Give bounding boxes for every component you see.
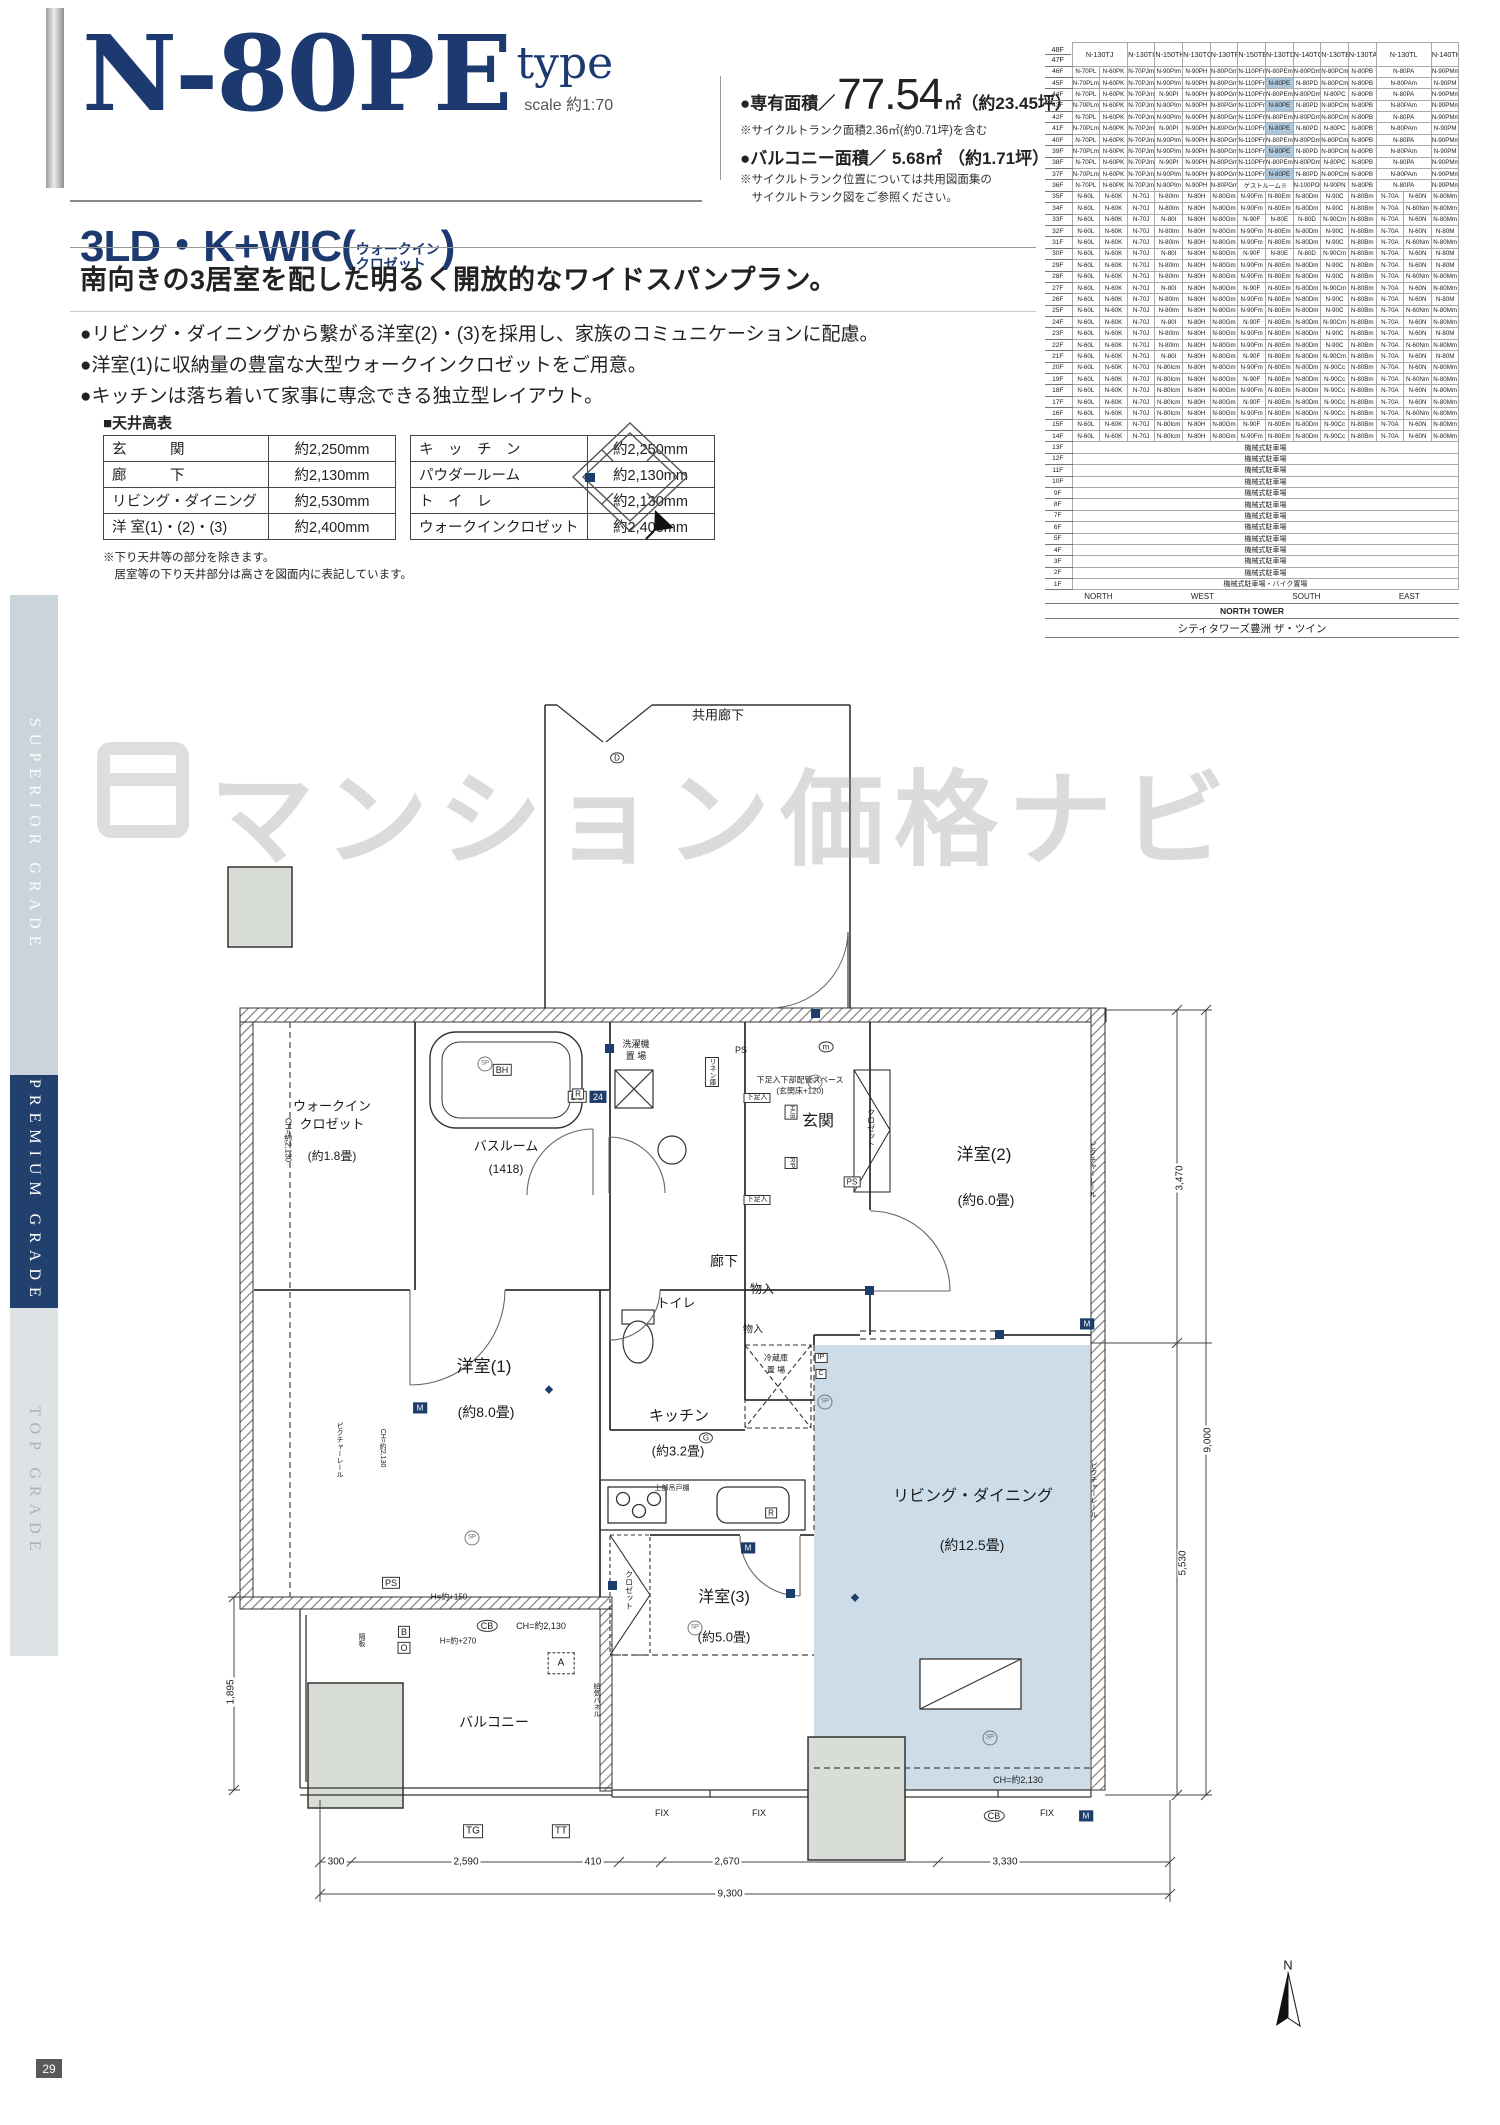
unit-cell: N-90C <box>1321 225 1349 236</box>
unit-cell: N-80Bm <box>1348 419 1376 430</box>
unit-cell: N-90Cm <box>1321 282 1349 293</box>
divider <box>70 311 1036 312</box>
unit-cell: N-90PI <box>1155 89 1183 100</box>
unit-cell: N-60N <box>1404 248 1432 259</box>
unit-cell: N-80PAm <box>1376 169 1431 180</box>
floor-label: 33F <box>1045 214 1072 225</box>
floor-label: 34F <box>1045 203 1072 214</box>
unit-cell: N-80Em <box>1265 271 1293 282</box>
unit-cell: N-70PL <box>1072 66 1100 77</box>
unit-cell: N-90PIm <box>1155 112 1183 123</box>
unit-cell: N-90Fm <box>1238 237 1266 248</box>
unit-cell: N-100POm <box>1293 180 1321 191</box>
unit-cell: N-90C <box>1321 271 1349 282</box>
parking-floor-cell: 機械式駐車場 <box>1072 544 1459 555</box>
unit-cell: N-80Em <box>1265 419 1293 430</box>
exclusive-area-value: 77.54 <box>837 70 942 120</box>
unit-cell: N-80D <box>1293 248 1321 259</box>
unit-cell: N-60L <box>1072 396 1100 407</box>
unit-cell: N-60L <box>1072 294 1100 305</box>
unit-cell: N-90PH <box>1183 100 1211 111</box>
unit-cell: N-70J <box>1127 260 1155 271</box>
unit-cell: N-90PI <box>1155 157 1183 168</box>
unit-cell: N-80Mm <box>1431 419 1459 430</box>
unit-type-header: N-130TB <box>1321 43 1349 67</box>
unit-cell: N-70PL <box>1072 89 1100 100</box>
unit-cell: N-80Em <box>1265 203 1293 214</box>
brochure-page: N-80PEtypescale 約1:70 3LD・K+WIC(ウォークインクロ… <box>0 0 1500 2125</box>
parking-floor-cell: 機械式駐車場 <box>1072 453 1459 464</box>
floor-label: 6F <box>1045 522 1072 533</box>
unit-cell: N-80Em <box>1265 237 1293 248</box>
unit-cell: N-80M <box>1431 260 1459 271</box>
unit-cell: N-80H <box>1183 203 1211 214</box>
unit-cell: N-110PFm <box>1238 66 1266 77</box>
unit-cell: N-80Gm <box>1210 225 1238 236</box>
floor-label: 16F <box>1045 408 1072 419</box>
unit-cell: N-80Gm <box>1210 351 1238 362</box>
unit-cell: N-80Gm <box>1210 260 1238 271</box>
unit-cell: N-70PJm <box>1127 169 1155 180</box>
floor-label: 8F <box>1045 499 1072 510</box>
unit-cell: N-80Im <box>1155 328 1183 339</box>
unit-cell: N-80Gm <box>1210 214 1238 225</box>
cycle-trunk-note3: サイクルトランク図をご参照ください。 <box>740 189 1040 205</box>
unit-cell: N-80PGm <box>1210 66 1238 77</box>
unit-cell: N-80Mm <box>1431 339 1459 350</box>
floor-label: 12F <box>1045 453 1072 464</box>
unit-cell: N-80Bm <box>1348 362 1376 373</box>
unit-cell: N-60N <box>1404 351 1432 362</box>
unit-cell: N-80Em <box>1265 328 1293 339</box>
unit-cell: N-60L <box>1072 419 1100 430</box>
unit-cell: N-80Dm <box>1293 374 1321 385</box>
unit-cell: N-90PM <box>1431 77 1459 88</box>
floor-label: 32F <box>1045 225 1072 236</box>
unit-cell: N-80PGm <box>1210 89 1238 100</box>
unit-cell: N-90C <box>1321 191 1349 202</box>
unit-cell: N-80Bm <box>1348 431 1376 442</box>
unit-cell: ゲストルーム※ <box>1238 180 1293 191</box>
unit-cell: N-80Bm <box>1348 203 1376 214</box>
unit-cell: N-80PB <box>1348 157 1376 168</box>
unit-cell: N-60PK <box>1100 89 1128 100</box>
unit-cell: N-80Mm <box>1431 385 1459 396</box>
unit-cell: N-90Cc <box>1321 362 1349 373</box>
unit-cell: N-90Cc <box>1321 385 1349 396</box>
unit-cell: N-80I <box>1155 317 1183 328</box>
unit-cell: N-60K <box>1100 408 1128 419</box>
unit-cell: N-60L <box>1072 214 1100 225</box>
unit-cell: N-80PE <box>1265 169 1293 180</box>
floor-label: 14F <box>1045 431 1072 442</box>
unit-cell: N-80Dm <box>1293 237 1321 248</box>
unit-cell: N-70J <box>1127 282 1155 293</box>
unit-cell: N-70J <box>1127 214 1155 225</box>
unit-cell: N-60L <box>1072 203 1100 214</box>
refrigerator-space <box>745 1345 811 1428</box>
unit-cell: N-80PEm <box>1265 89 1293 100</box>
unit-cell: N-90Fm <box>1238 191 1266 202</box>
unit-cell: N-80Im <box>1155 339 1183 350</box>
unit-cell: N-80Mm <box>1431 431 1459 442</box>
unit-cell: N-90PMm <box>1431 89 1459 100</box>
unit-cell: N-80PA <box>1376 180 1431 191</box>
unit-cell: N-80Dm <box>1293 351 1321 362</box>
unit-cell: N-80M <box>1431 248 1459 259</box>
direction-label: NORTH <box>1084 592 1112 601</box>
unit-cell: N-80PB <box>1348 89 1376 100</box>
unit-cell: N-60N <box>1404 362 1432 373</box>
unit-cell: N-80Mm <box>1431 237 1459 248</box>
unit-cell: N-80Bm <box>1348 225 1376 236</box>
washer-icon <box>615 1070 653 1108</box>
unit-cell: N-80PA <box>1376 66 1431 77</box>
unit-cell: N-90PM <box>1431 146 1459 157</box>
unit-cell: N-70A <box>1376 214 1404 225</box>
building-name: シティタワーズ豊洲 ザ・ツイン <box>1045 619 1459 638</box>
unit-cell: N-60N <box>1404 191 1432 202</box>
unit-cell: N-80Gm <box>1210 419 1238 430</box>
unit-type-header: N-130TL <box>1376 43 1431 67</box>
floor-label: 5F <box>1045 533 1072 544</box>
unit-cell: N-60L <box>1072 317 1100 328</box>
floor-label: 31F <box>1045 237 1072 248</box>
key-plan-diagram <box>555 415 705 550</box>
unit-cell: N-90Fm <box>1238 225 1266 236</box>
unit-cell: N-80M <box>1431 328 1459 339</box>
unit-cell: N-80PB <box>1348 180 1376 191</box>
unit-cell: N-70A <box>1376 191 1404 202</box>
unit-cell: N-80Mm <box>1431 282 1459 293</box>
unit-cell: N-80Em <box>1265 362 1293 373</box>
divider <box>70 247 1036 248</box>
parking-floor-cell: 機械式駐車場 <box>1072 465 1459 476</box>
balcony-area-label: ●バルコニー面積／ <box>740 144 886 169</box>
ceiling-room-name: 玄 関 <box>104 436 269 462</box>
unit-cell: N-70PJm <box>1127 180 1155 191</box>
floor-label: 42F <box>1045 112 1072 123</box>
unit-cell: N-80Em <box>1265 374 1293 385</box>
unit-cell: N-90PMm <box>1431 112 1459 123</box>
unit-cell: N-80Gm <box>1210 294 1238 305</box>
decor-silver-bar <box>46 8 64 188</box>
unit-cell: N-70A <box>1376 294 1404 305</box>
unit-cell: N-80Em <box>1265 225 1293 236</box>
unit-cell: N-60PK <box>1100 100 1128 111</box>
unit-type-header: N-130TJ <box>1072 43 1127 67</box>
unit-cell: N-60K <box>1100 260 1128 271</box>
unit-cell: N-60N <box>1404 396 1432 407</box>
unit-cell: N-80Bm <box>1348 351 1376 362</box>
unit-cell: N-80PGm <box>1210 77 1238 88</box>
unit-cell: N-80H <box>1183 260 1211 271</box>
unit-cell: N-60K <box>1100 282 1128 293</box>
unit-cell: N-80Em <box>1265 317 1293 328</box>
unit-cell: N-60L <box>1072 328 1100 339</box>
unit-cell: N-70J <box>1127 374 1155 385</box>
unit-cell: N-90PMm <box>1431 180 1459 191</box>
unit-cell: N-60N <box>1404 225 1432 236</box>
unit-cell: N-60L <box>1072 282 1100 293</box>
unit-cell: N-80Mm <box>1431 374 1459 385</box>
unit-cell: N-80Dm <box>1293 260 1321 271</box>
unit-cell: N-80PD <box>1293 169 1321 180</box>
unit-cell: N-70J <box>1127 191 1155 202</box>
unit-cell: N-70PL <box>1072 112 1100 123</box>
unit-cell: N-80PAm <box>1376 146 1431 157</box>
floor-label: 26F <box>1045 294 1072 305</box>
unit-cell: N-80PEm <box>1265 66 1293 77</box>
ceiling-room-name: 廊 下 <box>104 462 269 488</box>
unit-cell: N-70PJm <box>1127 77 1155 88</box>
unit-cell: N-70PL <box>1072 180 1100 191</box>
unit-cell: N-80Dm <box>1293 317 1321 328</box>
unit-cell: N-60K <box>1100 385 1128 396</box>
unit-cell: N-70PJm <box>1127 157 1155 168</box>
ceiling-notes: ※下り天井等の部分を除きます。 居室等の下り天井部分は高さを図面内に表記していま… <box>103 550 412 584</box>
unit-type-header: N-150TE <box>1238 43 1266 67</box>
unit-cell: N-80Bm <box>1348 385 1376 396</box>
unit-cell: N-80Im <box>1155 260 1183 271</box>
unit-cell: N-60Nm <box>1404 271 1432 282</box>
floor-label: 18F <box>1045 385 1072 396</box>
unit-cell: N-80Dm <box>1293 362 1321 373</box>
floor-label: 9F <box>1045 487 1072 498</box>
ceiling-height-value: 約2,130mm <box>269 462 396 488</box>
unit-cell: N-90Fm <box>1238 305 1266 316</box>
unit-cell: N-80Bm <box>1348 191 1376 202</box>
unit-cell: N-80H <box>1183 431 1211 442</box>
unit-cell: N-80H <box>1183 305 1211 316</box>
unit-cell: N-80PDm <box>1293 66 1321 77</box>
unit-cell: N-90Cc <box>1321 396 1349 407</box>
unit-cell: N-60N <box>1404 431 1432 442</box>
floor-label: 25F <box>1045 305 1072 316</box>
unit-cell: N-80PD <box>1293 123 1321 134</box>
floor-label: 24F <box>1045 317 1072 328</box>
floor-label: 39F <box>1045 146 1072 157</box>
unit-cell: N-70PL <box>1072 157 1100 168</box>
unit-cell: N-60N <box>1404 328 1432 339</box>
floor-label: 45F <box>1045 77 1072 88</box>
unit-cell: N-80Gm <box>1210 282 1238 293</box>
unit-cell: N-60K <box>1100 339 1128 350</box>
unit-cell: N-90Fm <box>1238 271 1266 282</box>
unit-cell: N-80Dm <box>1293 203 1321 214</box>
unit-cell: N-80I <box>1155 214 1183 225</box>
unit-cell: N-70J <box>1127 225 1155 236</box>
unit-cell: N-80Em <box>1265 351 1293 362</box>
unit-cell: N-80PGm <box>1210 169 1238 180</box>
unit-type-header: N-140TC <box>1293 43 1321 67</box>
unit-cell: N-60L <box>1072 385 1100 396</box>
title-scale: scale 約1:70 <box>516 91 613 115</box>
floor-label: 20F <box>1045 362 1072 373</box>
unit-cell: N-90PH <box>1183 77 1211 88</box>
unit-cell: N-80Em <box>1265 305 1293 316</box>
unit-cell: N-80Icm <box>1155 419 1183 430</box>
unit-cell: N-80PGm <box>1210 123 1238 134</box>
unit-cell: N-70J <box>1127 237 1155 248</box>
floor-label: 37F <box>1045 169 1072 180</box>
unit-cell: N-80Em <box>1265 282 1293 293</box>
unit-cell: N-70J <box>1127 351 1155 362</box>
sidebar-superior-grade: SUPERIOR GRADE <box>10 595 58 1075</box>
unit-cell: N-80Im <box>1155 294 1183 305</box>
unit-cell: N-70PJm <box>1127 123 1155 134</box>
unit-cell: N-80H <box>1183 214 1211 225</box>
unit-cell: N-80PB <box>1348 123 1376 134</box>
unit-cell: N-70J <box>1127 385 1155 396</box>
unit-cell: N-80H <box>1183 248 1211 259</box>
unit-cell: N-80PD <box>1293 77 1321 88</box>
unit-cell: N-80Im <box>1155 191 1183 202</box>
unit-cell: N-80H <box>1183 294 1211 305</box>
unit-cell: N-90F <box>1238 248 1266 259</box>
unit-cell: N-60K <box>1100 203 1128 214</box>
unit-cell: N-80Gm <box>1210 271 1238 282</box>
feature-bullets: ●リビング・ダイニングから繋がる洋室(2)・(3)を採用し、家族のコミュニケーシ… <box>80 319 879 412</box>
unit-cell: N-80Mm <box>1431 271 1459 282</box>
unit-cell: N-70J <box>1127 271 1155 282</box>
unit-cell: N-80Dm <box>1293 225 1321 236</box>
unit-cell: N-70PJm <box>1127 112 1155 123</box>
unit-cell: N-90F <box>1238 351 1266 362</box>
unit-cell: N-60N <box>1404 419 1432 430</box>
unit-cell: N-80PEm <box>1265 157 1293 168</box>
unit-cell: N-70PL <box>1072 134 1100 145</box>
unit-cell: N-80PA <box>1376 157 1431 168</box>
unit-cell: N-80Em <box>1265 431 1293 442</box>
toilet-icon <box>622 1310 654 1363</box>
unit-cell: N-90Fm <box>1238 328 1266 339</box>
unit-cell: N-70PLm <box>1072 77 1100 88</box>
exclusive-area-label: ●専有面積／ <box>740 89 835 114</box>
unit-cell: N-80D <box>1293 214 1321 225</box>
unit-cell: N-70A <box>1376 385 1404 396</box>
balcony-area-paren: （約1.71坪） <box>948 144 1049 169</box>
unit-cell: N-80PGm <box>1210 180 1238 191</box>
ceiling-height-value: 約2,400mm <box>269 514 396 540</box>
unit-cell: N-70A <box>1376 203 1404 214</box>
unit-cell: N-80Gm <box>1210 203 1238 214</box>
unit-cell: N-80Em <box>1265 191 1293 202</box>
unit-cell: N-80Icm <box>1155 396 1183 407</box>
page-title: N-80PE <box>82 12 510 135</box>
unit-cell: N-60K <box>1100 317 1128 328</box>
parking-floor-cell: 機械式駐車場 <box>1072 487 1459 498</box>
unit-cell: N-60L <box>1072 260 1100 271</box>
unit-cell: N-60K <box>1100 351 1128 362</box>
parking-floor-cell: 機械式駐車場 <box>1072 567 1459 578</box>
unit-cell: N-110PFm <box>1238 100 1266 111</box>
unit-cell: N-70J <box>1127 203 1155 214</box>
floor-label: 46F <box>1045 66 1072 77</box>
unit-cell: N-70J <box>1127 294 1155 305</box>
unit-cell: N-80H <box>1183 191 1211 202</box>
floor-label: 17F <box>1045 396 1072 407</box>
unit-cell: N-80H <box>1183 396 1211 407</box>
unit-cell: N-80Gm <box>1210 374 1238 385</box>
unit-cell: N-80Im <box>1155 305 1183 316</box>
parking-floor-cell: 機械式駐車場・バイク置場 <box>1072 579 1459 590</box>
unit-cell: N-80Mm <box>1431 191 1459 202</box>
floor-label: 35F <box>1045 191 1072 202</box>
kitchen-counter <box>600 1480 805 1530</box>
unit-cell: N-80Dm <box>1293 396 1321 407</box>
unit-cell: N-80Mm <box>1431 408 1459 419</box>
unit-cell: N-80Bm <box>1348 408 1376 419</box>
unit-cell: N-90Cm <box>1321 317 1349 328</box>
unit-cell: N-70A <box>1376 328 1404 339</box>
unit-cell: N-80H <box>1183 362 1211 373</box>
unit-cell: N-80PCm <box>1321 100 1349 111</box>
unit-cell: N-60L <box>1072 248 1100 259</box>
feature-bullet: ●リビング・ダイニングから繋がる洋室(2)・(3)を採用し、家族のコミュニケーシ… <box>80 319 879 350</box>
unit-cell: N-70PJm <box>1127 146 1155 157</box>
unit-cell: N-70J <box>1127 248 1155 259</box>
unit-cell: N-60PK <box>1100 169 1128 180</box>
unit-cell: N-80Im <box>1155 203 1183 214</box>
unit-type-header: N-130TI <box>1127 43 1155 67</box>
floor-label: 10F <box>1045 476 1072 487</box>
unit-cell: N-90PI <box>1155 123 1183 134</box>
ceiling-table-title: ■天井高表 <box>103 412 172 433</box>
floor-label: 3F <box>1045 556 1072 567</box>
unit-cell: N-90Cc <box>1321 419 1349 430</box>
unit-cell: N-90C <box>1321 305 1349 316</box>
unit-cell: N-80I <box>1155 351 1183 362</box>
unit-cell: N-90C <box>1321 203 1349 214</box>
unit-cell: N-80Dm <box>1293 431 1321 442</box>
floor-label: 41F <box>1045 123 1072 134</box>
floor-label: 48F47F <box>1045 43 1072 67</box>
unit-cell: N-80Gm <box>1210 385 1238 396</box>
unit-type-header: N-130TD <box>1265 43 1293 67</box>
unit-cell: N-70A <box>1376 351 1404 362</box>
unit-cell: N-60L <box>1072 431 1100 442</box>
unit-cell: N-80Em <box>1265 339 1293 350</box>
unit-cell: N-70J <box>1127 305 1155 316</box>
unit-cell: N-90PH <box>1183 123 1211 134</box>
unit-cell: N-70J <box>1127 362 1155 373</box>
unit-cell: N-60K <box>1100 362 1128 373</box>
floor-label: 30F <box>1045 248 1072 259</box>
unit-cell: N-80Dm <box>1293 339 1321 350</box>
unit-cell: N-70A <box>1376 374 1404 385</box>
unit-cell: N-80Em <box>1265 385 1293 396</box>
unit-cell: N-80PE <box>1265 146 1293 157</box>
unit-cell: N-90Cc <box>1321 431 1349 442</box>
unit-cell: N-80PCm <box>1321 169 1349 180</box>
unit-cell: N-70PJm <box>1127 66 1155 77</box>
sidebar-premium-grade: PREMIUM GRADE <box>10 1075 58 1308</box>
feature-bullet: ●キッチンは落ち着いて家事に専念できる独立型レイアウト。 <box>80 381 879 412</box>
unit-cell: N-60PK <box>1100 146 1128 157</box>
unit-cell: N-80PB <box>1348 66 1376 77</box>
unit-cell: N-90Fm <box>1238 408 1266 419</box>
unit-cell: N-90PMm <box>1431 66 1459 77</box>
floor-label: 38F <box>1045 157 1072 168</box>
unit-cell: N-80H <box>1183 225 1211 236</box>
unit-cell: N-60N <box>1404 385 1432 396</box>
unit-cell: N-60N <box>1404 214 1432 225</box>
unit-cell: N-80E <box>1265 214 1293 225</box>
unit-cell: N-90Fm <box>1238 260 1266 271</box>
parking-floor-cell: 機械式駐車場 <box>1072 442 1459 453</box>
unit-cell: N-70A <box>1376 339 1404 350</box>
